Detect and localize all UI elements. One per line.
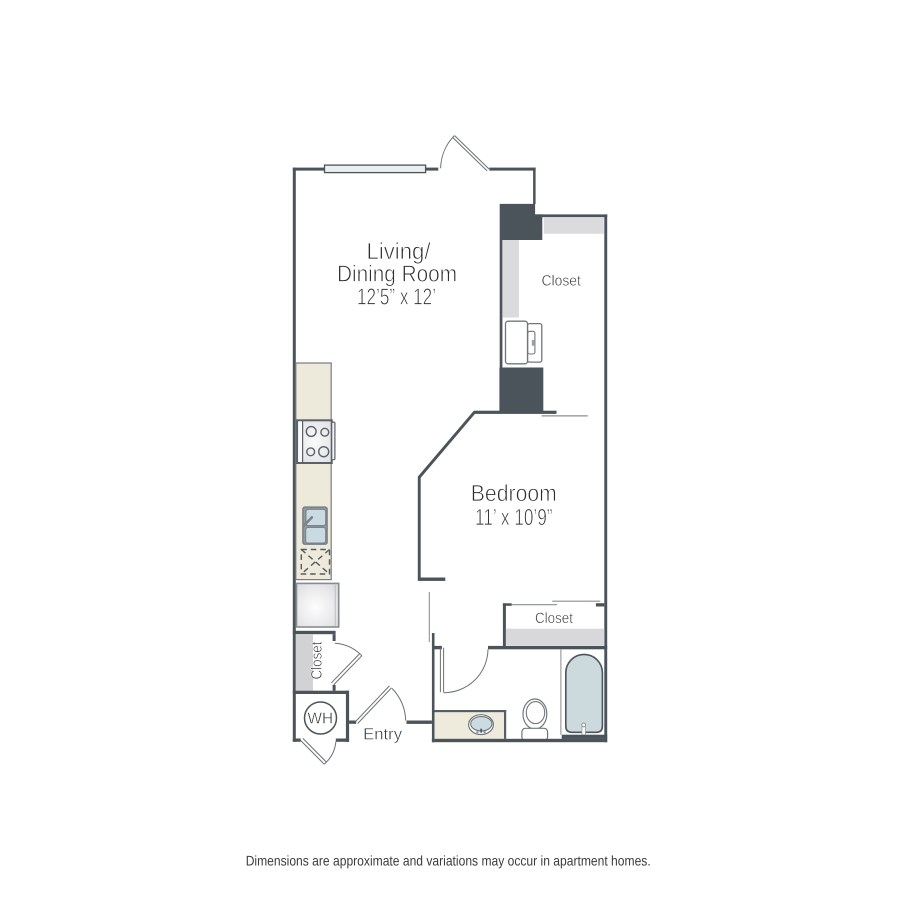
svg-text:Dimensions are approximate and: Dimensions are approximate and variation… [246, 852, 651, 868]
svg-text:Closet: Closet [535, 610, 574, 627]
svg-text:WH: WH [308, 711, 334, 728]
svg-text:Closet: Closet [541, 272, 581, 289]
svg-text:Closet: Closet [309, 641, 326, 680]
svg-text:Entry: Entry [363, 726, 403, 744]
svg-text:11’ x 10’9”: 11’ x 10’9” [475, 504, 553, 530]
svg-text:12’5” x 12’: 12’5” x 12’ [357, 284, 436, 310]
svg-text:Bedroom: Bedroom [471, 480, 557, 506]
